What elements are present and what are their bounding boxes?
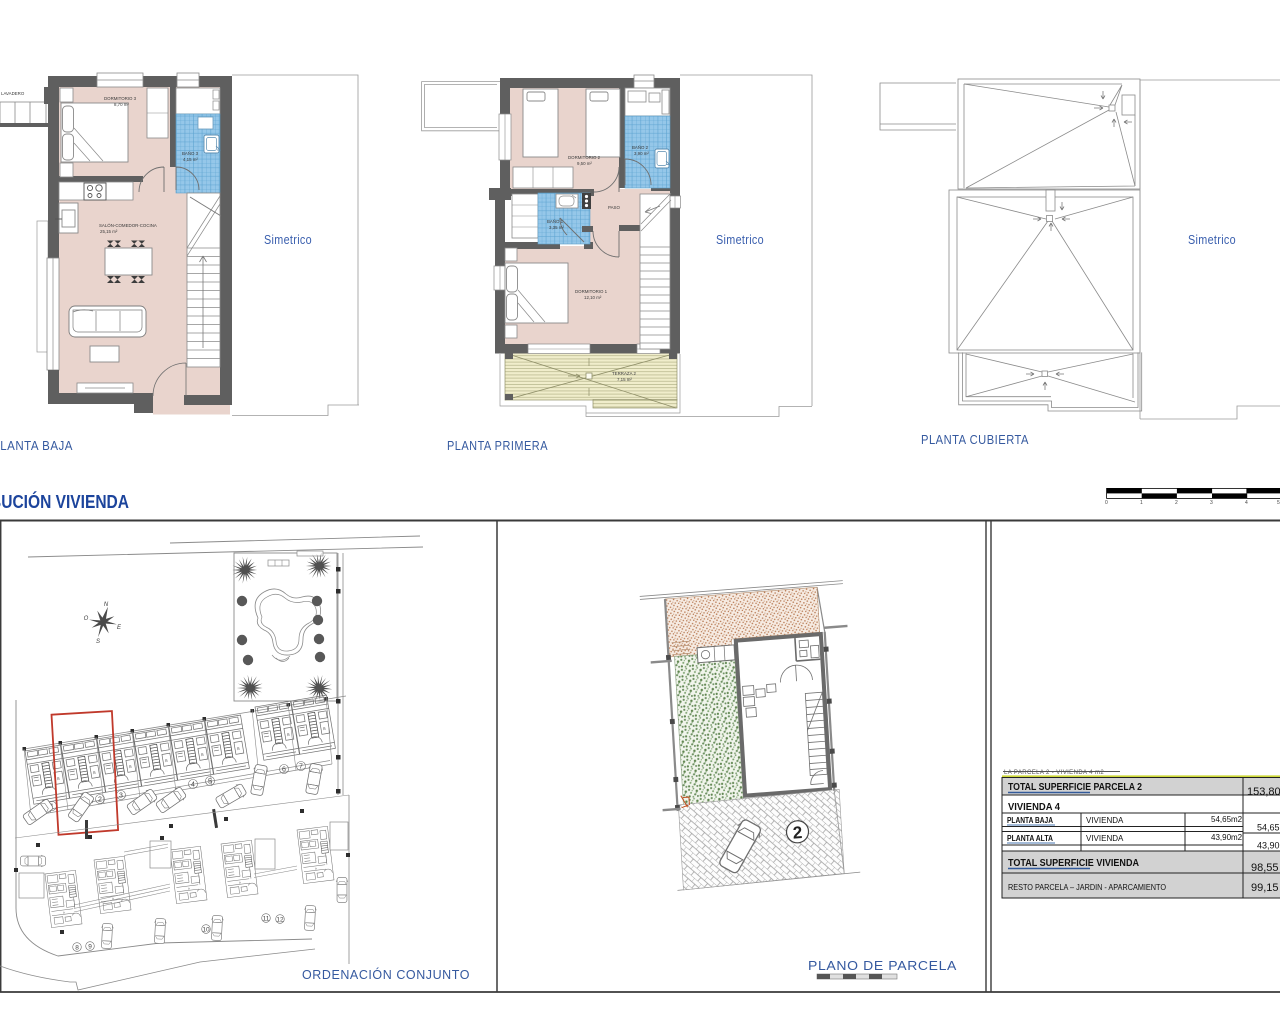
svg-text:PLANTA BAJA: PLANTA BAJA (1007, 816, 1053, 825)
svg-text:3: 3 (1210, 500, 1213, 506)
svg-text:153,80: 153,80 (1247, 786, 1280, 798)
svg-text:LAVADERO: LAVADERO (1, 91, 25, 96)
svg-text:4: 4 (1245, 500, 1248, 506)
svg-text:Simetrico: Simetrico (264, 232, 312, 247)
svg-text:3: 3 (119, 793, 123, 800)
svg-text:54,65: 54,65 (1257, 823, 1280, 833)
svg-text:9,50 m²: 9,50 m² (577, 161, 592, 166)
svg-text:8,70 m²: 8,70 m² (114, 102, 129, 107)
svg-text:DORMITORIO 1: DORMITORIO 1 (575, 289, 608, 294)
svg-text:5: 5 (208, 779, 212, 786)
svg-text:LA PARCELA 2 - VIVIENDA 4 m2: LA PARCELA 2 - VIVIENDA 4 m2 (1004, 770, 1104, 776)
svg-text:TOTAL SUPERFICIE VIVIENDA: TOTAL SUPERFICIE VIVIENDA (1008, 858, 1139, 869)
svg-text:PASO: PASO (608, 205, 620, 210)
svg-text:BAÑO 3: BAÑO 3 (182, 151, 199, 156)
svg-text:2: 2 (792, 823, 803, 843)
svg-text:12: 12 (276, 917, 284, 924)
svg-text:Simetrico: Simetrico (716, 232, 764, 247)
svg-text:Simetrico: Simetrico (1188, 232, 1236, 247)
svg-text:TERRAZA 2: TERRAZA 2 (612, 371, 636, 376)
svg-text:PLANTA CUBIERTA: PLANTA CUBIERTA (921, 432, 1029, 447)
svg-text:DORMITORIO 3: DORMITORIO 3 (104, 96, 137, 101)
svg-text:2: 2 (1175, 500, 1178, 506)
svg-text:25,15 m²: 25,15 m² (100, 229, 118, 234)
svg-text:VIVIENDA: VIVIENDA (1086, 816, 1124, 825)
svg-text:99,15: 99,15 (1251, 882, 1279, 894)
svg-text:2: 2 (98, 797, 102, 804)
svg-text:BAÑO 2: BAÑO 2 (632, 145, 649, 150)
svg-text:4,15 m²: 4,15 m² (183, 157, 198, 162)
svg-text:43,90: 43,90 (1257, 841, 1280, 851)
svg-text:3,90 m²: 3,90 m² (634, 151, 649, 156)
svg-text:6: 6 (282, 767, 286, 774)
svg-text:BAÑO 1: BAÑO 1 (547, 219, 564, 224)
svg-text:4: 4 (191, 782, 195, 789)
svg-text:SALÓN-COMEDOR-COCINA: SALÓN-COMEDOR-COCINA (99, 223, 157, 228)
svg-text:43,90m2: 43,90m2 (1211, 833, 1243, 842)
svg-text:PLANO DE PARCELA: PLANO DE PARCELA (808, 958, 957, 973)
svg-text:ORDENACIÓN CONJUNTO: ORDENACIÓN CONJUNTO (302, 967, 470, 982)
svg-text:PLANTA BAJA: PLANTA BAJA (0, 438, 73, 453)
svg-text:98,55: 98,55 (1251, 862, 1279, 874)
svg-text:DORMITORIO 2: DORMITORIO 2 (568, 155, 601, 160)
svg-text:10: 10 (202, 927, 210, 934)
svg-text:S: S (96, 639, 100, 645)
svg-text:PLANTA PRIMERA: PLANTA PRIMERA (447, 438, 548, 453)
svg-text:3,35 m²: 3,35 m² (549, 225, 564, 230)
svg-text:BUCIÓN VIVIENDA: BUCIÓN VIVIENDA (0, 491, 129, 512)
svg-text:TOTAL SUPERFICIE PARCELA 2: TOTAL SUPERFICIE PARCELA 2 (1008, 782, 1142, 793)
svg-text:1: 1 (1140, 500, 1143, 506)
svg-text:12,10 m²: 12,10 m² (584, 295, 602, 300)
svg-text:VIVIENDA 4: VIVIENDA 4 (1008, 802, 1060, 813)
svg-text:N: N (104, 602, 109, 608)
svg-text:O: O (84, 616, 89, 622)
svg-text:VIVIENDA: VIVIENDA (1086, 834, 1124, 843)
svg-text:7: 7 (299, 764, 303, 771)
svg-text:0: 0 (1105, 500, 1108, 506)
svg-text:7,15 m²: 7,15 m² (617, 377, 632, 382)
svg-text:RESTO PARCELA – JARDIN - APARC: RESTO PARCELA – JARDIN - APARCAMIENTO (1008, 882, 1166, 892)
svg-text:PLANTA ALTA: PLANTA ALTA (1007, 834, 1053, 843)
svg-text:8: 8 (75, 945, 79, 952)
svg-text:9: 9 (88, 944, 92, 951)
svg-text:11: 11 (263, 916, 270, 923)
svg-text:54,65m2: 54,65m2 (1211, 815, 1243, 824)
